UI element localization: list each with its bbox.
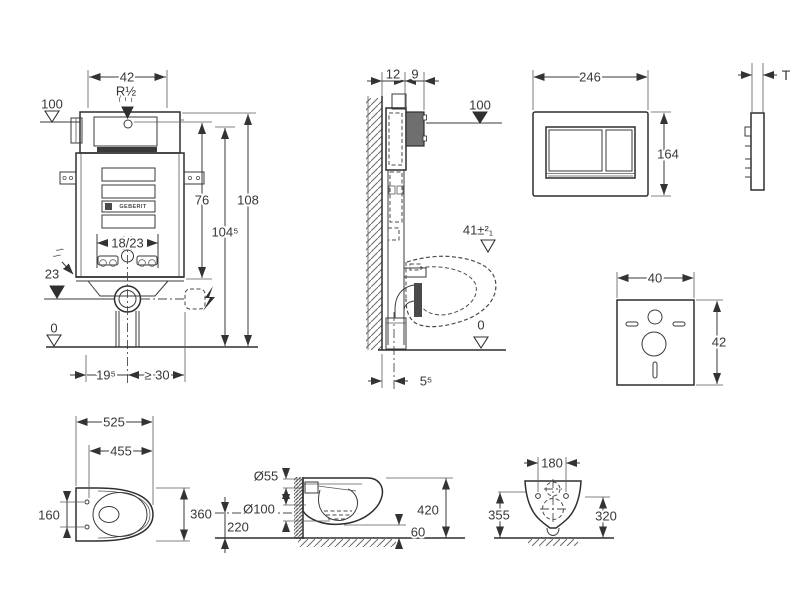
installation-side-view: 12 9 100 41±²₁ 0 5⁵ — [366, 67, 506, 391]
pan-front-outline — [525, 479, 581, 536]
datum-0-label: 0 — [50, 321, 57, 336]
datum-100-side: 100 — [426, 98, 502, 124]
datum-100-label: 100 — [41, 97, 63, 112]
dim-1045-label: 104⁵ — [211, 225, 238, 240]
floor-section-front — [494, 538, 614, 546]
flush-plate-front — [533, 112, 648, 196]
dim-42-mat-label: 42 — [712, 335, 726, 350]
wall-bracket-left — [60, 172, 76, 184]
dim-525-label: 525 — [103, 415, 125, 430]
dim-246: 246 — [533, 70, 648, 111]
dim-320-label: 320 — [595, 509, 617, 524]
dim-360-label: 360 — [190, 507, 212, 522]
datum-23-outlet: 23 — [44, 267, 114, 300]
protection-box — [406, 112, 424, 146]
dim-246-label: 246 — [579, 70, 601, 85]
wall-strip — [294, 477, 303, 539]
sound-mat-view: 40 42 — [617, 271, 726, 386]
dim-355: 355 — [488, 492, 526, 538]
flush-button-small — [606, 130, 632, 171]
supply-thread-label: R½ — [116, 84, 136, 99]
pan-top-outline — [76, 488, 153, 541]
dim-420-label: 420 — [417, 503, 439, 518]
electrical-connection — [141, 286, 215, 311]
wall-bracket-right — [184, 172, 204, 184]
dim-180: 180 — [524, 456, 580, 493]
dim-1823-label: 18/23 — [111, 236, 144, 251]
flush-plate-profile: T — [738, 63, 791, 190]
dim-320: 320 — [585, 497, 617, 538]
datum-41-label: 41±²₁ — [463, 223, 494, 238]
dim-164: 164 — [651, 112, 679, 196]
dim-355-label: 355 — [488, 508, 510, 523]
brand-label: GEBERIT — [119, 204, 146, 210]
datum-23-label: 23 — [45, 267, 59, 282]
datum-0-side-label: 0 — [477, 318, 484, 333]
drawing-canvas: GEBERIT — [0, 0, 800, 600]
dim-76-label: 76 — [195, 193, 209, 208]
dim-360: 360 — [156, 488, 212, 541]
cistern-frame-body: GEBERIT — [60, 153, 204, 296]
dim-164-label: 164 — [657, 147, 679, 162]
valve-fitting-right — [137, 256, 157, 266]
datum-41-rim: 41±²₁ — [463, 223, 495, 253]
geberit-logo: GEBERIT — [102, 201, 155, 212]
cistern-front-view: GEBERIT — [40, 70, 259, 387]
wall-section — [366, 96, 382, 350]
wc-side-view: Ø55 Ø100 220 420 60 — [215, 469, 465, 554]
dim-160: 160 — [38, 491, 84, 538]
valve-fitting-left — [98, 256, 118, 266]
dim-o100-label: Ø100 — [243, 502, 275, 517]
dim-55-label: 5⁵ — [420, 374, 433, 389]
dim-55-offset: 5⁵ — [368, 354, 432, 389]
dim-40-label: 40 — [648, 271, 662, 286]
mat-outline — [617, 300, 694, 385]
mat-cutouts — [626, 310, 685, 378]
wc-top-view: 525 455 160 360 — [38, 415, 212, 542]
dim-42-label: 42 — [120, 70, 134, 85]
dim-ge30-label: ≥ 30 — [144, 368, 169, 383]
flush-plate-view: 246 164 T — [533, 63, 791, 196]
dim-width-42: 42 R½ — [88, 70, 167, 109]
datum-0-floor: 0 — [47, 321, 61, 347]
dim-bolt-spacing: 18/23 — [98, 236, 158, 251]
datum-100-side-label: 100 — [469, 98, 491, 113]
flush-button-large — [549, 130, 602, 171]
dim-220-label: 220 — [227, 520, 249, 535]
wc-front-view: 180 355 320 — [488, 456, 617, 547]
technical-drawing-sheet: GEBERIT — [0, 0, 800, 600]
dim-o55-label: Ø55 — [254, 469, 279, 484]
dim-40: 40 — [617, 271, 694, 299]
dim-60-label: 60 — [411, 525, 425, 540]
dim-108-label: 108 — [237, 193, 259, 208]
dim-195-label: 19⁵ — [96, 368, 116, 383]
pan-side-outline — [303, 478, 382, 524]
dim-160-label: 160 — [38, 508, 60, 523]
dim-T-label: T — [782, 67, 791, 83]
dim-455-label: 455 — [110, 444, 132, 459]
dim-9-label: 9 — [411, 67, 418, 82]
dim-180-label: 180 — [541, 456, 563, 471]
dim-12-label: 12 — [386, 67, 400, 82]
datum-0-side: 0 — [474, 318, 488, 349]
dim-42-mat: 42 — [696, 300, 726, 385]
floor-section — [215, 538, 465, 547]
